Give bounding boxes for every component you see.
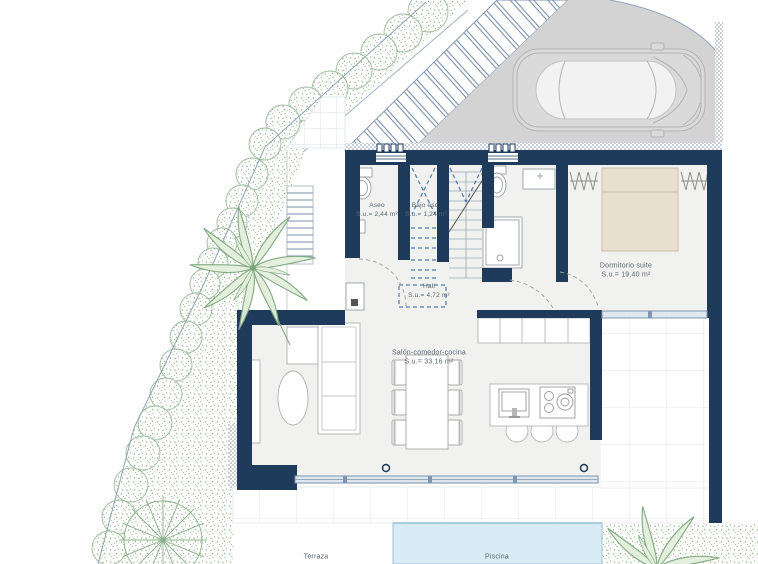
chairs-right — [448, 360, 462, 445]
site-plan-drawing — [0, 0, 758, 564]
dining-table — [406, 355, 448, 449]
bed — [602, 168, 678, 251]
cooktop — [540, 387, 575, 418]
sink — [499, 389, 529, 417]
bedroom-terrace-tiles — [600, 318, 710, 488]
floor-plan-canvas: AseoS.u.= 2,44 m² Bajo esc.S.u.= 1,24 m²… — [0, 0, 758, 564]
pool — [393, 523, 602, 564]
dining-set — [392, 355, 462, 449]
kitchen-cabinets — [478, 318, 590, 343]
glass-door-bedroom — [602, 311, 707, 318]
coffee-table — [278, 371, 308, 425]
chairs-left — [392, 360, 406, 445]
car-top-view — [513, 43, 705, 137]
